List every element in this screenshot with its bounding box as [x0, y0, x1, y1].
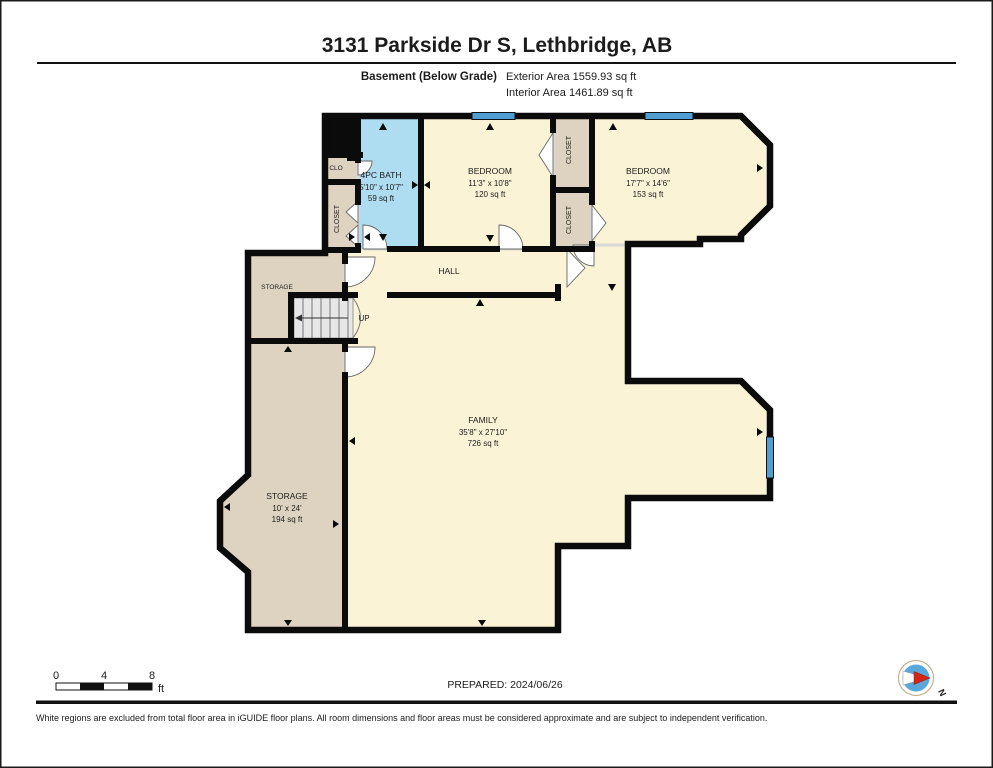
page-title: 3131 Parkside Dr S, Lethbridge, AB: [322, 34, 673, 57]
exterior-area-label: Exterior Area 1559.93 sq ft: [506, 71, 636, 83]
family-area: 726 sq ft: [468, 439, 499, 448]
bedroom1-area: 120 sq ft: [475, 190, 506, 199]
window-bedroom2: [645, 113, 693, 120]
scale-tick-4: 4: [101, 670, 107, 682]
scale-tick-0: 0: [53, 670, 59, 682]
stairs-up-label: UP: [358, 314, 369, 323]
bedroom1-name: BEDROOM: [468, 166, 512, 176]
disclaimer-text: White regions are excluded from total fl…: [36, 713, 767, 723]
hall-name: HALL: [438, 266, 460, 276]
closet-top-name: CLOSET: [566, 135, 573, 164]
window-bedroom1: [472, 113, 515, 120]
bedroom1-dims: 11'3" x 10'8": [468, 179, 511, 188]
bedroom2-dims: 17'7" x 14'6": [626, 179, 670, 188]
bath-name: 4PC BATH: [361, 170, 402, 180]
interior-area-label: Interior Area 1461.89 sq ft: [506, 87, 633, 99]
prepared-date: PREPARED: 2024/06/26: [447, 679, 563, 691]
family-name: FAMILY: [468, 415, 498, 425]
storage-name: STORAGE: [266, 491, 308, 501]
storage-dims: 10' x 24': [272, 504, 302, 513]
scale-unit: ft: [158, 683, 164, 695]
closet-left-name: CLOSET: [334, 204, 341, 233]
family-dims: 35'8" x 27'10": [459, 428, 507, 437]
scale-tick-8: 8: [149, 670, 155, 682]
floor-label: Basement (Below Grade): [361, 71, 497, 83]
clo-name: CLO: [329, 165, 342, 172]
footer-divider: [36, 701, 957, 705]
bedroom2-area: 153 sq ft: [633, 190, 664, 199]
bath-dims: 5'10" x 10'7": [359, 183, 403, 192]
window-family: [767, 437, 774, 478]
bath-area: 59 sq ft: [368, 194, 395, 203]
floor-plan-page: 3131 Parkside Dr S, Lethbridge, AB Basem…: [0, 0, 993, 768]
scale-bar-seg2: [128, 683, 152, 690]
closet-bottom-name: CLOSET: [566, 205, 573, 234]
storage-area: 194 sq ft: [272, 515, 303, 524]
bedroom2-name: BEDROOM: [626, 166, 670, 176]
scale-bar-seg1: [80, 683, 104, 690]
storage-small-name: STORAGE: [261, 284, 293, 291]
